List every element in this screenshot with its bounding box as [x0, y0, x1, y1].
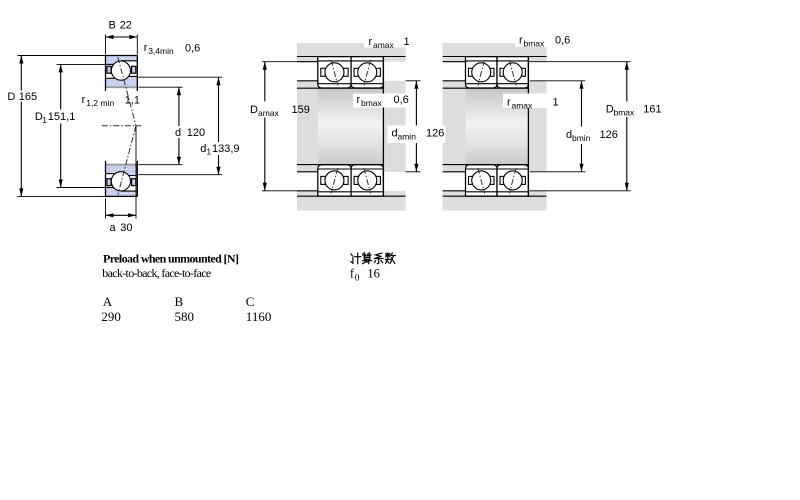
svg-text:r: r [144, 42, 148, 54]
svg-text:r: r [507, 97, 511, 109]
svg-text:r: r [82, 94, 86, 106]
svg-text:C: C [246, 294, 255, 309]
svg-text:back-to-back, face-to-face: back-to-back, face-to-face [102, 266, 211, 280]
svg-text:30: 30 [120, 222, 132, 234]
svg-text:16: 16 [367, 266, 380, 280]
svg-text:B: B [175, 294, 184, 309]
svg-text:3,4min: 3,4min [148, 46, 174, 56]
svg-text:Preload when unmounted [N]: Preload when unmounted [N] [103, 251, 239, 265]
svg-text:1: 1 [42, 115, 47, 125]
svg-text:amax: amax [373, 40, 395, 50]
svg-text:bmin: bmin [572, 133, 591, 143]
svg-text:r: r [357, 94, 361, 106]
svg-text:120: 120 [187, 127, 205, 139]
svg-text:A: A [103, 294, 113, 309]
svg-text:159: 159 [292, 104, 310, 116]
svg-text:B: B [109, 20, 116, 32]
svg-text:126: 126 [426, 128, 444, 140]
svg-text:1,2 min: 1,2 min [86, 98, 114, 108]
svg-text:126: 126 [600, 129, 618, 141]
svg-text:d: d [175, 127, 181, 139]
svg-text:1: 1 [206, 147, 211, 157]
svg-text:22: 22 [120, 20, 132, 32]
svg-text:580: 580 [175, 309, 195, 324]
svg-text:1160: 1160 [246, 309, 272, 324]
svg-text:amax: amax [512, 101, 534, 111]
svg-text:amax: amax [258, 108, 280, 118]
svg-text:r: r [519, 35, 523, 47]
svg-text:0: 0 [355, 273, 360, 283]
svg-text:amin: amin [398, 132, 417, 142]
svg-text:1,1: 1,1 [125, 95, 140, 107]
svg-text:133,9: 133,9 [212, 143, 240, 155]
svg-text:r: r [369, 36, 373, 48]
svg-text:D: D [7, 91, 15, 103]
svg-text:bmax: bmax [361, 98, 383, 108]
svg-text:1: 1 [553, 97, 559, 109]
svg-text:D: D [250, 104, 258, 116]
svg-text:bmax: bmax [614, 108, 636, 118]
svg-text:151,1: 151,1 [48, 111, 76, 123]
svg-text:0,6: 0,6 [555, 35, 570, 47]
svg-text:1: 1 [404, 36, 410, 48]
svg-text:290: 290 [101, 309, 121, 324]
svg-text:0,6: 0,6 [185, 43, 200, 55]
svg-text:0,6: 0,6 [394, 94, 409, 106]
svg-text:a: a [110, 222, 117, 234]
svg-text:bmax: bmax [524, 39, 546, 49]
svg-text:161: 161 [643, 104, 661, 116]
svg-text:165: 165 [19, 91, 37, 103]
